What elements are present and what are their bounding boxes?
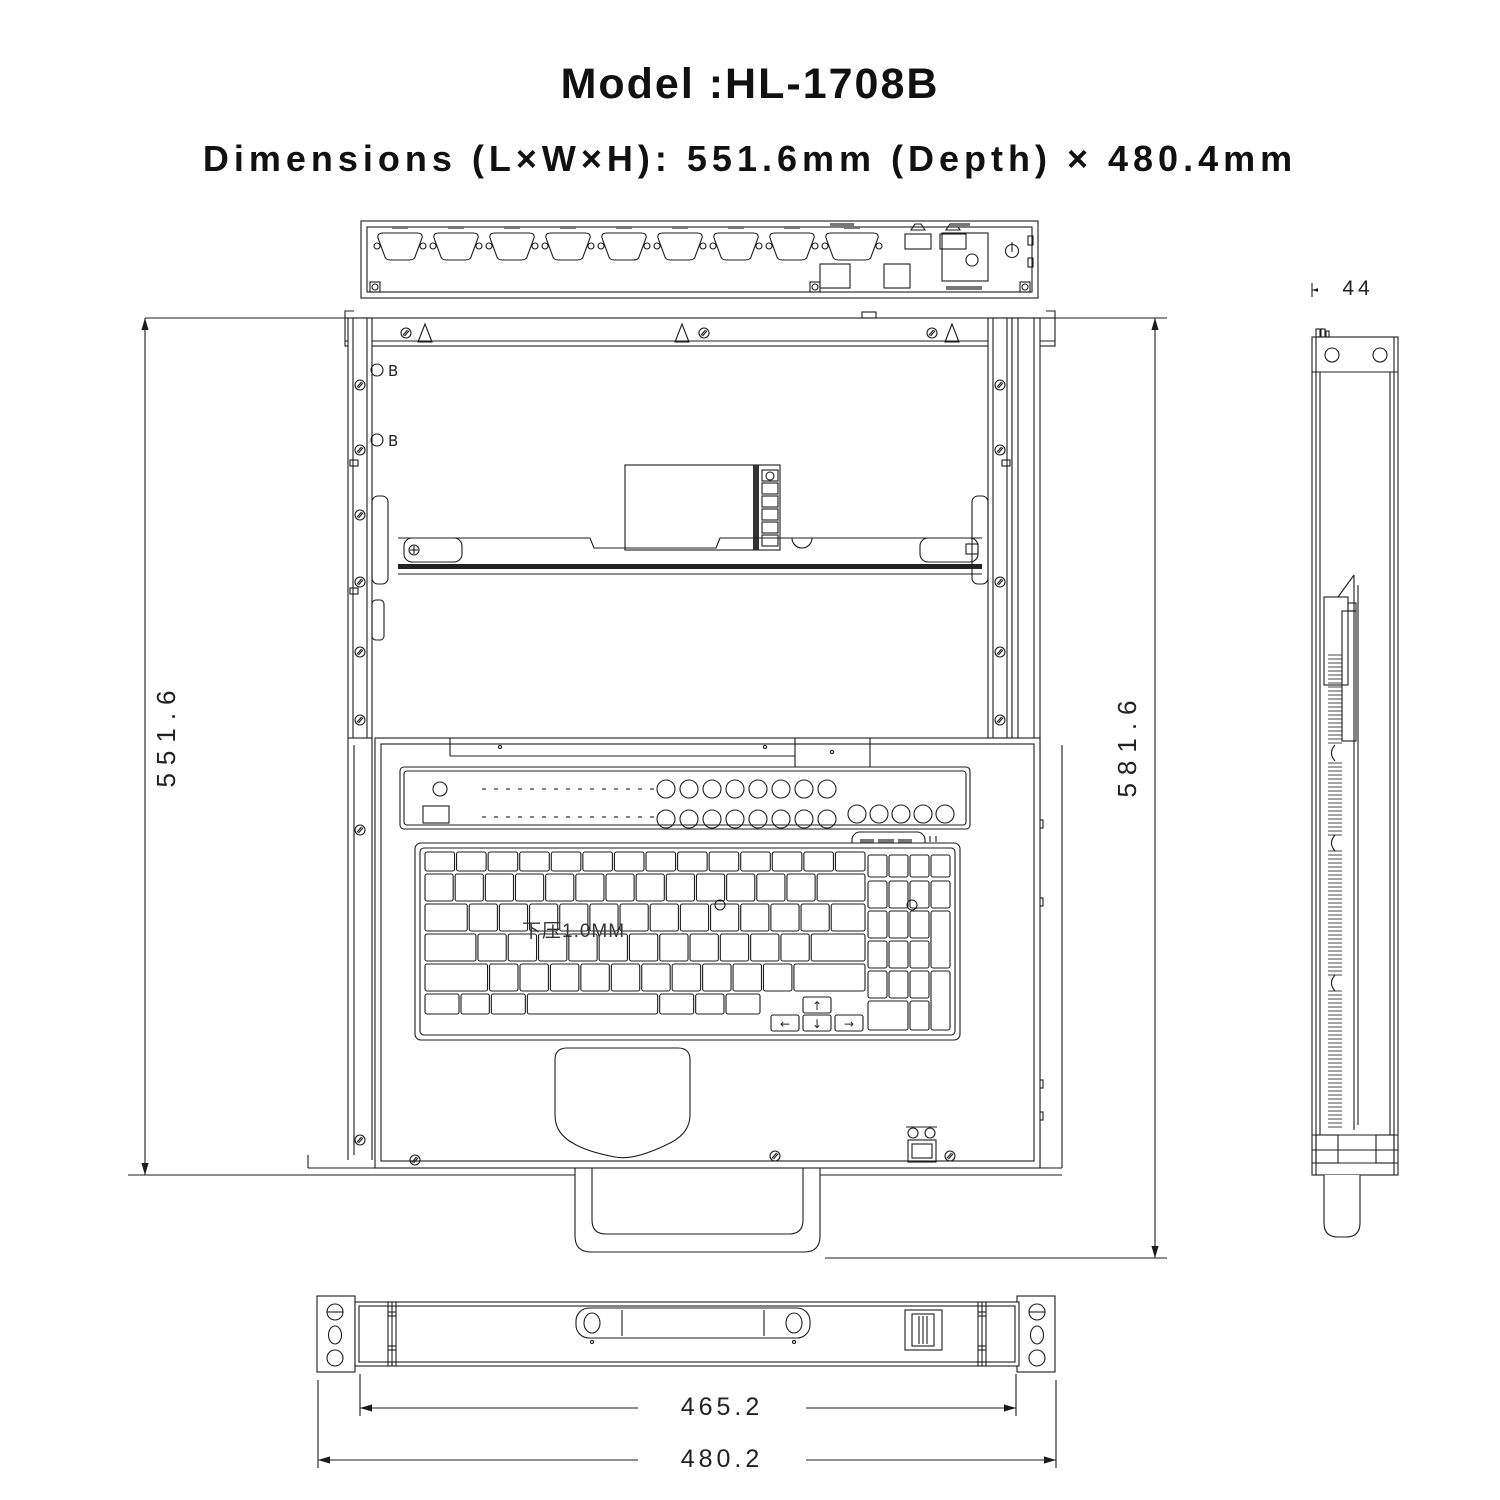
controller-board — [625, 465, 780, 550]
panel-height-dimension-value: 44 — [1318, 277, 1398, 301]
depth-dimension-value: 551.6 — [151, 625, 181, 845]
datum-b-label: B — [388, 362, 398, 380]
side-view — [1280, 275, 1450, 1280]
db9-connector-row — [374, 223, 882, 260]
overall-width-dimension-value: 480.2 — [638, 1445, 806, 1474]
mounting-ear-left — [317, 1296, 355, 1372]
front-handle — [575, 1160, 820, 1252]
arrow-up-icon: ↑ — [812, 999, 822, 1013]
overall-depth-dimension-value: 581.6 — [1112, 635, 1142, 855]
network-ports — [820, 264, 910, 288]
datum-marker-b: B B — [388, 362, 398, 450]
arrow-right-icon: → — [844, 1017, 854, 1031]
power-inlet — [942, 223, 988, 290]
touchpad — [555, 1048, 690, 1158]
arrow-down-icon: ↓ — [812, 1017, 822, 1031]
technical-drawing-page: Model :HL-1708B Dimensions (L×W×H): 551.… — [0, 0, 1500, 1500]
side-body — [1312, 329, 1398, 1175]
keyboard-note: 下压1.0MM — [522, 916, 625, 943]
side-handle — [1324, 1175, 1360, 1237]
datum-b-label: B — [388, 432, 398, 450]
body-width-dimension-value: 465.2 — [638, 1393, 806, 1422]
mounting-ear-right — [1017, 1296, 1055, 1372]
arrow-left-icon: ← — [780, 1017, 790, 1031]
rear-panel-view — [360, 220, 1040, 304]
page-subtitle: Dimensions (L×W×H): 551.6mm (Depth) × 48… — [0, 138, 1500, 180]
top-view: B B ↑ ← ↓ → — [120, 300, 1180, 1280]
power-switch-icon — [1006, 242, 1019, 258]
keyboard — [415, 843, 960, 1040]
page-title: Model :HL-1708B — [0, 60, 1500, 109]
rear-mounting-bar — [345, 311, 1055, 346]
